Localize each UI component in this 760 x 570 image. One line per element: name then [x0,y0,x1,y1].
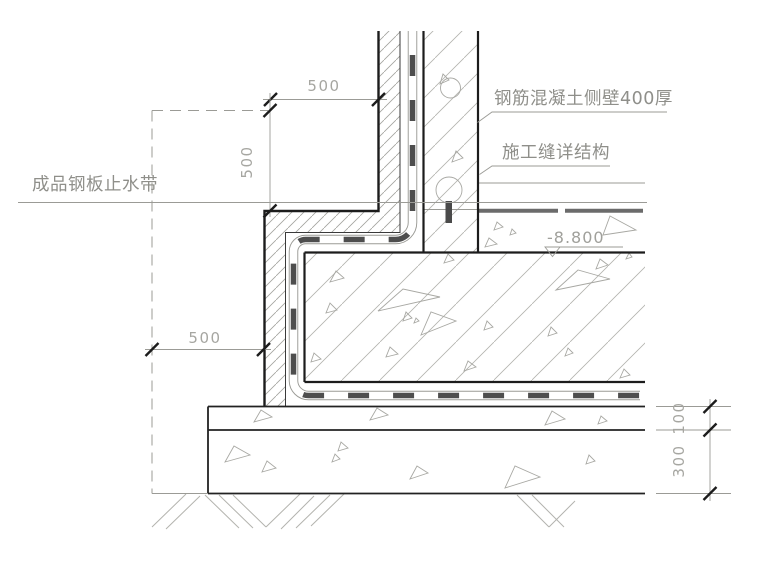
label-waterstop: 成品钢板止水带 [18,175,647,203]
soil-hatch [152,493,575,529]
waterstop-label-text: 成品钢板止水带 [32,175,158,195]
dim-side-height-value: 500 [238,145,256,178]
detail-drawing: 500 500 500 100 300 钢筋混凝土侧壁400厚 施工缝详结构 成… [0,0,760,570]
dim-cushion-lower-value: 300 [670,444,688,477]
drawing-canvas: 500 500 500 100 300 钢筋混凝土侧壁400厚 施工缝详结构 成… [0,0,760,570]
elevation-value: -8.800 [547,228,605,247]
dimension-side-height: 500 [238,93,277,218]
label-wall: 钢筋混凝土侧壁400厚 [478,89,673,123]
cushion-layers [152,407,645,494]
wall-label-text: 钢筋混凝土侧壁400厚 [494,89,673,109]
dim-top-width-value: 500 [307,77,340,95]
dimension-bottom-offset: 500 [145,329,271,356]
dimension-cushion-layers: 100 300 [656,399,731,501]
slab-concrete-hatch [305,253,646,383]
dimension-top-width: 500 [263,77,387,106]
label-construction-joint: 施工缝详结构 [480,143,611,175]
joint-label-text: 施工缝详结构 [502,143,610,163]
steel-waterstop [446,201,453,223]
dim-cushion-upper-value: 100 [670,401,688,434]
dim-bottom-offset-value: 500 [188,329,221,347]
